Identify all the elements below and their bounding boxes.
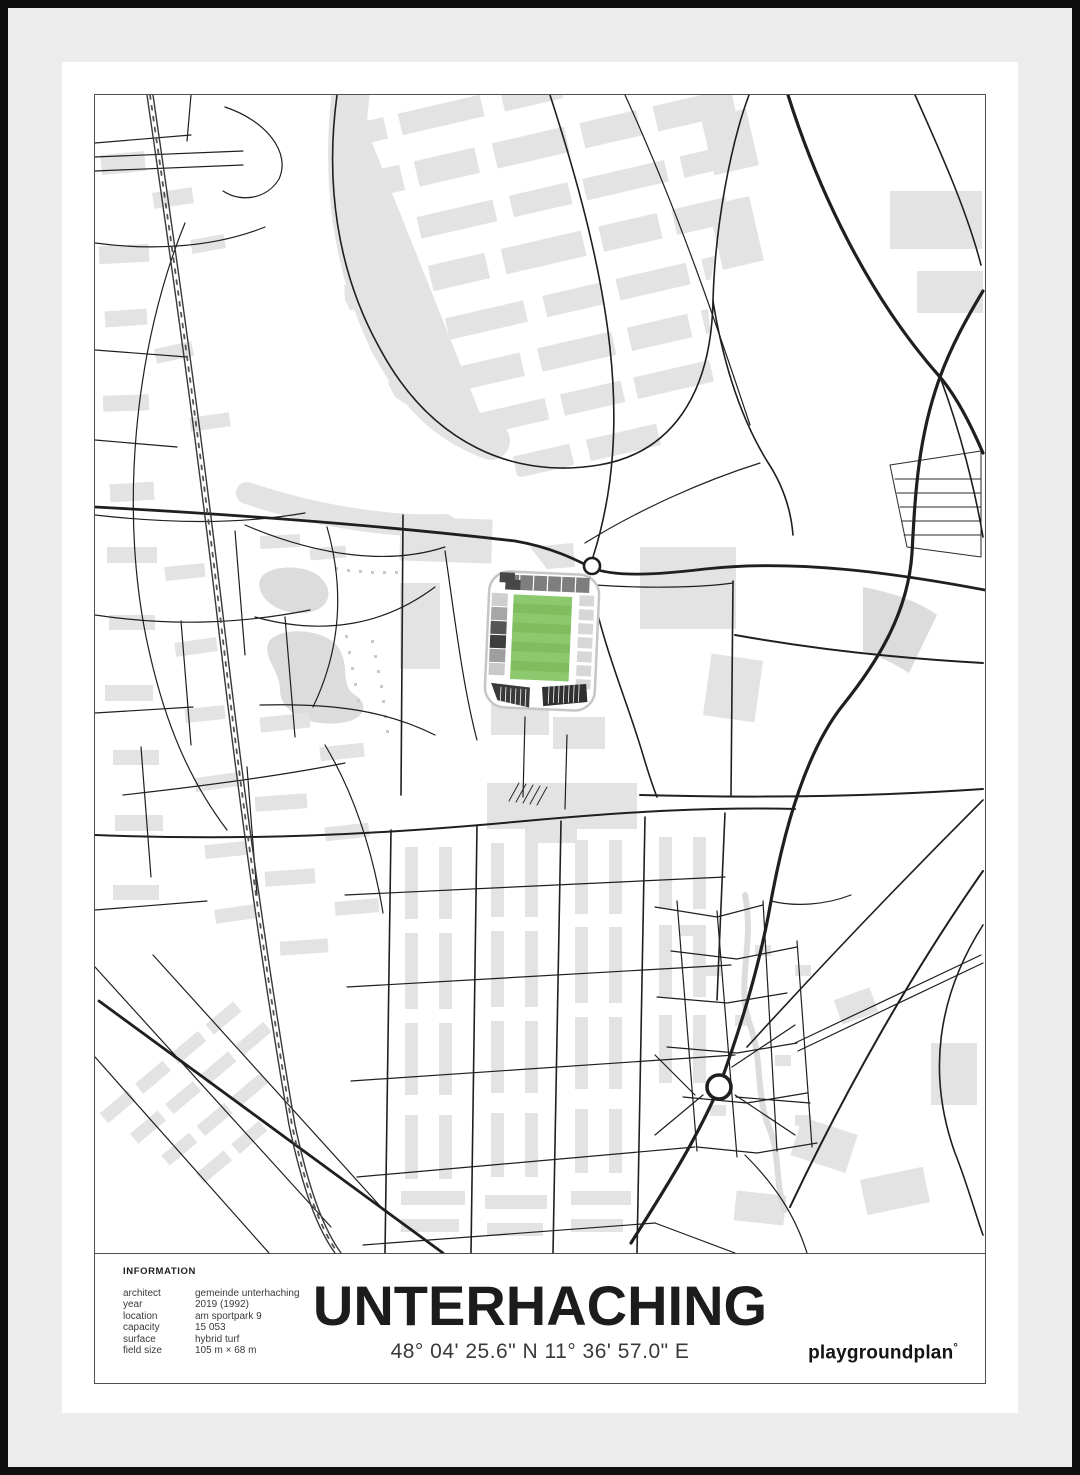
info-heading: INFORMATION <box>123 1266 300 1277</box>
brand-text: playgroundplan <box>808 1342 953 1363</box>
plan-border-box: INFORMATION architect gemeinde unterhach… <box>94 94 986 1384</box>
stadium <box>484 571 600 712</box>
poster-photo: INFORMATION architect gemeinde unterhach… <box>0 0 1080 1475</box>
roundabout-icon <box>707 1075 731 1099</box>
allotment-field <box>890 451 981 557</box>
brand-logo: playgroundplan° <box>808 1342 958 1364</box>
poster-sheet: INFORMATION architect gemeinde unterhach… <box>62 62 1018 1413</box>
stream <box>744 895 785 1210</box>
stadium-east-stand <box>575 595 595 691</box>
brand-degree-mark: ° <box>953 1342 958 1354</box>
stadium-pitch <box>509 594 573 683</box>
city-map <box>95 95 985 1254</box>
poster-title: UNTERHACHING <box>95 1278 985 1334</box>
caption-area: INFORMATION architect gemeinde unterhach… <box>95 1254 985 1383</box>
junction-circle-icon <box>584 558 600 574</box>
frame-mat: INFORMATION architect gemeinde unterhach… <box>8 8 1072 1467</box>
picture-frame: INFORMATION architect gemeinde unterhach… <box>0 0 1080 1475</box>
